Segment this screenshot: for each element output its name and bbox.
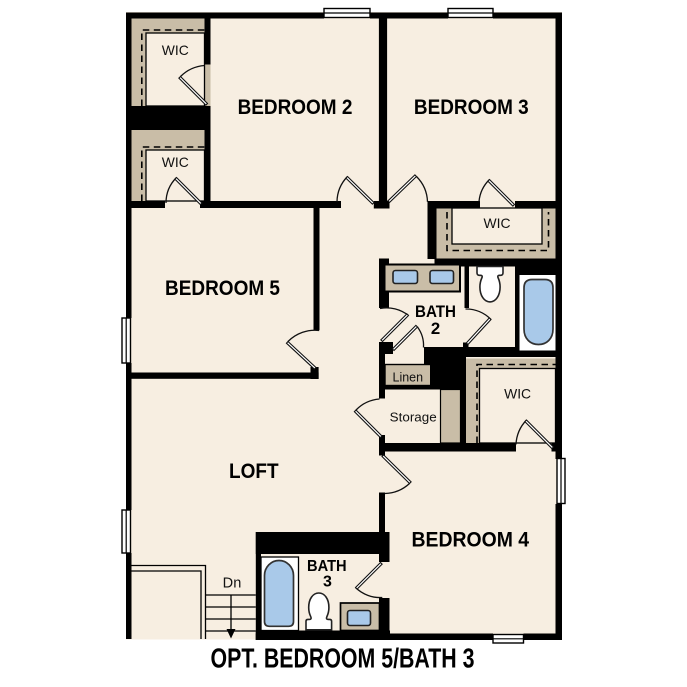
svg-text:WIC: WIC [162, 42, 189, 58]
svg-text:BEDROOM 4: BEDROOM 4 [412, 529, 530, 552]
svg-text:LOFT: LOFT [229, 460, 279, 483]
svg-text:BATH: BATH [307, 558, 347, 575]
svg-text:3: 3 [323, 574, 332, 591]
svg-text:BEDROOM 5: BEDROOM 5 [165, 277, 280, 300]
svg-text:Linen: Linen [393, 370, 424, 385]
svg-text:BEDROOM 3: BEDROOM 3 [414, 96, 529, 119]
svg-text:2: 2 [431, 319, 440, 338]
svg-text:Dn: Dn [223, 575, 242, 591]
svg-text:WIC: WIC [162, 154, 189, 170]
svg-text:BEDROOM 2: BEDROOM 2 [238, 96, 353, 119]
svg-text:OPT. BEDROOM 5/BATH 3: OPT. BEDROOM 5/BATH 3 [211, 642, 475, 673]
svg-text:Storage: Storage [390, 410, 437, 425]
svg-text:WIC: WIC [484, 215, 511, 231]
svg-text:WIC: WIC [504, 385, 531, 401]
